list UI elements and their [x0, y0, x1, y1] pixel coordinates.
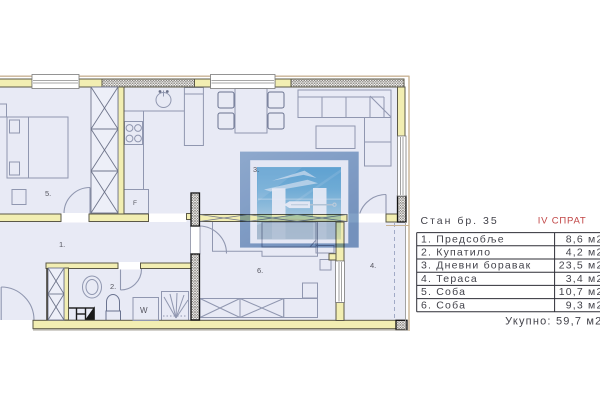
- svg-text:6. Соба: 6. Соба: [421, 299, 466, 311]
- svg-text:6.: 6.: [257, 266, 263, 275]
- svg-text:F: F: [133, 200, 137, 207]
- svg-text:4. Тераса: 4. Тераса: [421, 273, 478, 285]
- svg-text:W: W: [140, 306, 148, 315]
- svg-text:Укупно: 59,7 м2: Укупно: 59,7 м2: [505, 316, 600, 328]
- svg-text:1. Предсобље: 1. Предсобље: [421, 233, 505, 245]
- svg-text:4,2 м2: 4,2 м2: [566, 247, 600, 259]
- svg-text:8,6 м2: 8,6 м2: [566, 233, 600, 245]
- svg-text:5. Соба: 5. Соба: [421, 286, 466, 298]
- svg-text:23,5 м2: 23,5 м2: [559, 260, 600, 272]
- svg-text:10,7 м2: 10,7 м2: [559, 286, 600, 298]
- svg-text:3. Дневни боравак: 3. Дневни боравак: [421, 260, 531, 272]
- svg-text:2. Купатило: 2. Купатило: [421, 247, 491, 259]
- svg-text:5.: 5.: [45, 189, 51, 198]
- svg-text:Стан бр. 35: Стан бр. 35: [421, 215, 499, 227]
- svg-text:9,3 м2: 9,3 м2: [566, 299, 600, 311]
- svg-text:3,4 м2: 3,4 м2: [566, 273, 600, 285]
- svg-text:2.: 2.: [110, 282, 116, 291]
- svg-text:1.: 1.: [59, 240, 65, 249]
- svg-text:4.: 4.: [370, 261, 376, 270]
- svg-text:IV СПРАТ: IV СПРАТ: [538, 216, 587, 227]
